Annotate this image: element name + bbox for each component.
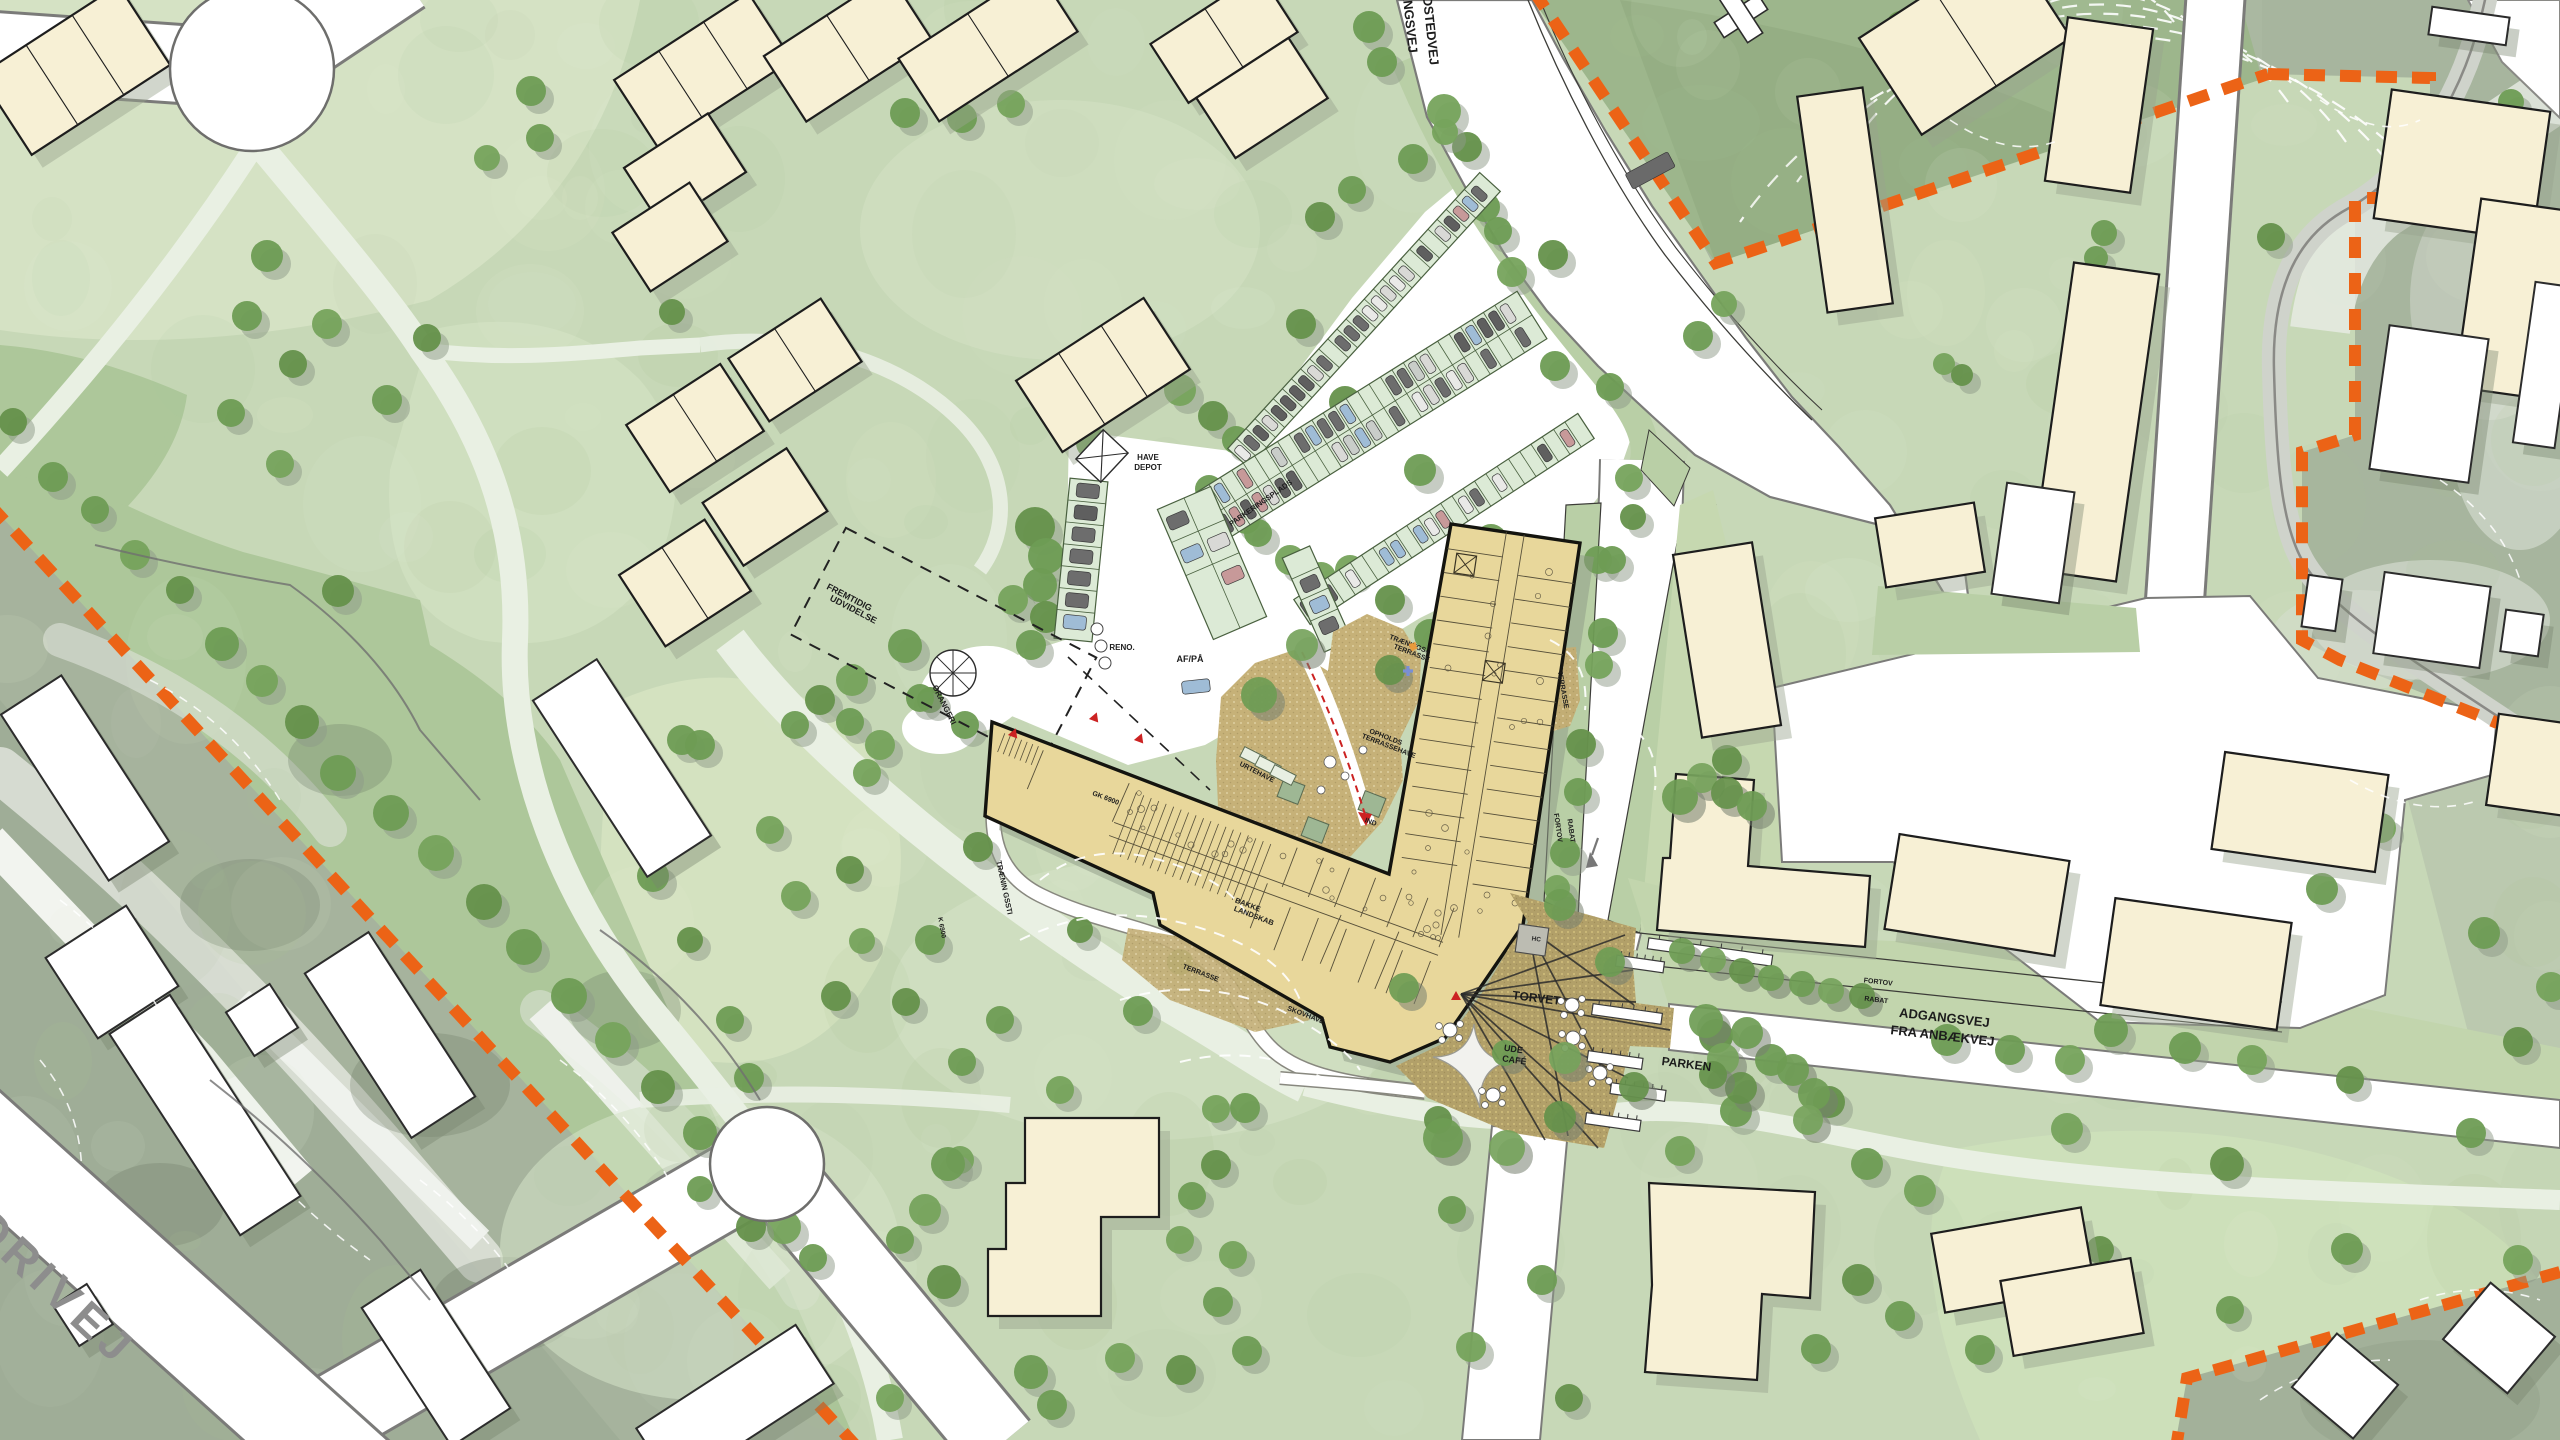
svg-text:RENO.: RENO. [1109,643,1134,652]
svg-text:DEPOT: DEPOT [1134,463,1162,472]
svg-text:AF/PÅ: AF/PÅ [1177,654,1205,664]
svg-text:HAVE: HAVE [1137,453,1159,462]
svg-text:HC: HC [1531,935,1542,943]
